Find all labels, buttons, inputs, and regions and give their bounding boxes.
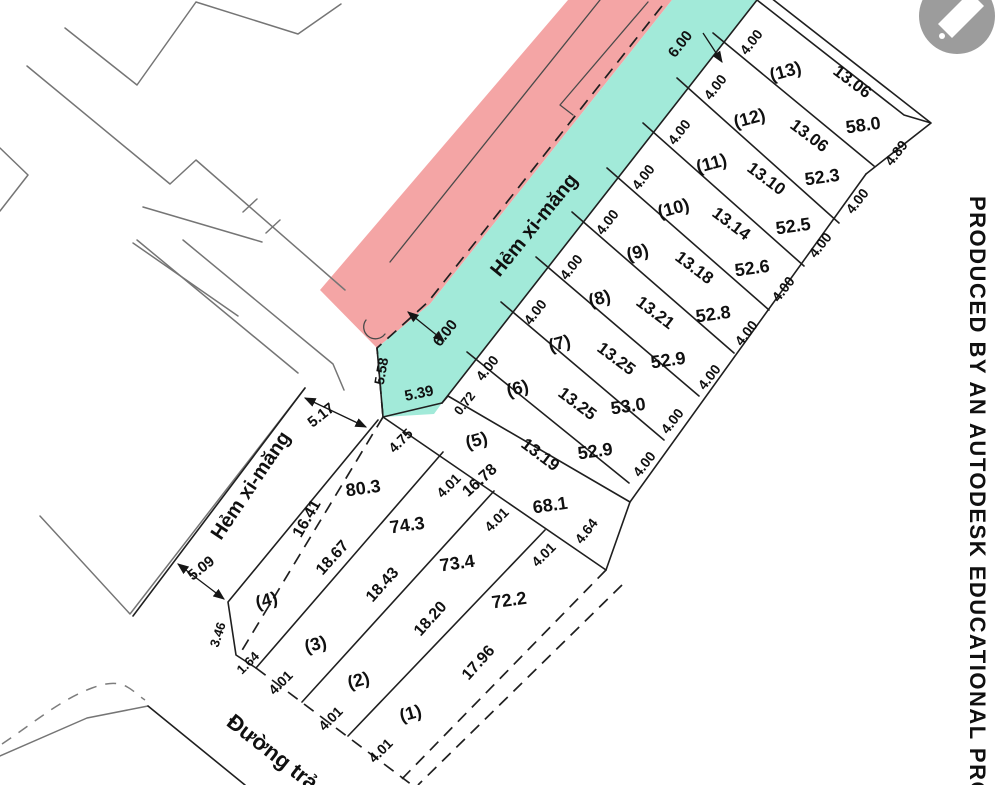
plot-length: 18.43 — [363, 564, 402, 605]
width-dim: 4.64 — [571, 515, 601, 546]
width-dim: 4.00 — [731, 317, 761, 348]
plot-number: (10) — [655, 194, 691, 222]
plan-canvas: (13)(12)(11)(10)(9)(8)(7)(6)(5)13.0613.0… — [0, 0, 1007, 785]
width-dim: 1.64 — [234, 648, 263, 677]
plot-number: (12) — [731, 104, 767, 132]
road-far-edge — [0, 706, 148, 756]
width-dim: 5.09 — [184, 553, 217, 584]
width-dim: 4.01 — [481, 504, 512, 535]
width-dim: 4.00 — [629, 448, 659, 479]
plot-area: 73.4 — [438, 551, 475, 576]
width-dim: 4.01 — [265, 667, 296, 698]
width-dim: 4.00 — [700, 71, 730, 102]
width-dim: 4.00 — [657, 405, 687, 436]
plot-length: 18.67 — [313, 537, 352, 578]
plot-area: 74.3 — [388, 513, 425, 538]
plot-area: 80.3 — [344, 476, 381, 501]
width-dim: 3.46 — [207, 620, 229, 649]
neighbor-outline-southwest — [40, 388, 305, 614]
plot-length: 13.19 — [518, 434, 563, 475]
plot-number: (8) — [586, 286, 612, 311]
alley-label: Hẻm xi-măng — [207, 427, 295, 543]
plot-number: (9) — [624, 240, 650, 265]
plot-length: 13.10 — [744, 158, 789, 199]
plot-length: 13.25 — [594, 338, 639, 379]
neighbor-outline-mid — [27, 66, 345, 290]
plot-number: (7) — [546, 331, 572, 356]
plot-length: 18.20 — [411, 598, 450, 639]
plot-length: 16.41 — [290, 497, 325, 540]
plot-area: 52.6 — [733, 256, 770, 281]
width-dim: 4.00 — [664, 116, 694, 147]
plot-area: 53.0 — [609, 394, 646, 419]
plot-area: 52.8 — [694, 302, 731, 327]
width-dim: 4.00 — [842, 185, 872, 216]
lower-alley-nw-edge — [133, 388, 305, 616]
plot-number: (5) — [463, 428, 489, 453]
width-dim: 4.00 — [768, 273, 798, 304]
watermark-text: PRODUCED BY AN AUTODESK EDUCATIONAL PRO — [965, 196, 990, 785]
plot-length: 17.96 — [459, 642, 498, 683]
plot-length: 13.18 — [672, 247, 717, 288]
plot-area: 58.0 — [844, 113, 881, 138]
plot-area: 68.1 — [531, 493, 568, 518]
plot-area: 72.2 — [490, 588, 527, 613]
plot-number: (3) — [302, 632, 328, 657]
width-dim: 4.75 — [385, 425, 416, 456]
plot-length: 16.78 — [459, 461, 500, 500]
neighbor-outline-lines — [133, 207, 262, 316]
road-label: Đường trả — [222, 709, 324, 785]
plot-area: 52.5 — [774, 214, 811, 239]
plot-number: (11) — [694, 150, 729, 177]
plot-area: 52.9 — [649, 348, 686, 373]
width-dim: 4.01 — [365, 735, 396, 766]
edge-4-64 — [606, 502, 630, 570]
plot-number: (1) — [397, 701, 423, 726]
plot-length: 13.25 — [555, 383, 600, 424]
road-curve-dashed — [2, 683, 145, 744]
site-plan-drawing: (13)(12)(11)(10)(9)(8)(7)(6)(5)13.0613.0… — [0, 0, 1007, 785]
width-dim: 4.01 — [433, 470, 464, 501]
plot-number: (2) — [345, 668, 371, 693]
width-dim: 5.17 — [304, 400, 337, 431]
plot-length: 13.14 — [709, 203, 755, 244]
plot-number: (13) — [767, 57, 803, 85]
neighbor-outline-top — [65, 2, 341, 85]
plot-area: 52.9 — [576, 439, 613, 464]
transition-strip-line — [383, 417, 606, 570]
neighbor-outline-left — [0, 148, 28, 211]
width-dim: 4.01 — [315, 703, 346, 734]
width-dim: 4.00 — [628, 161, 658, 192]
plot-number: (4) — [253, 588, 279, 613]
width-dim: 0.72 — [451, 389, 478, 418]
edit-badge[interactable] — [919, 0, 995, 54]
plot-area: 52.3 — [803, 165, 840, 190]
width-dim: 4.00 — [736, 26, 766, 57]
pen-icon-tip — [939, 33, 945, 39]
plot-number: (6) — [504, 376, 530, 401]
plot-length: 13.06 — [830, 61, 875, 102]
plot-length: 13.06 — [787, 115, 832, 156]
